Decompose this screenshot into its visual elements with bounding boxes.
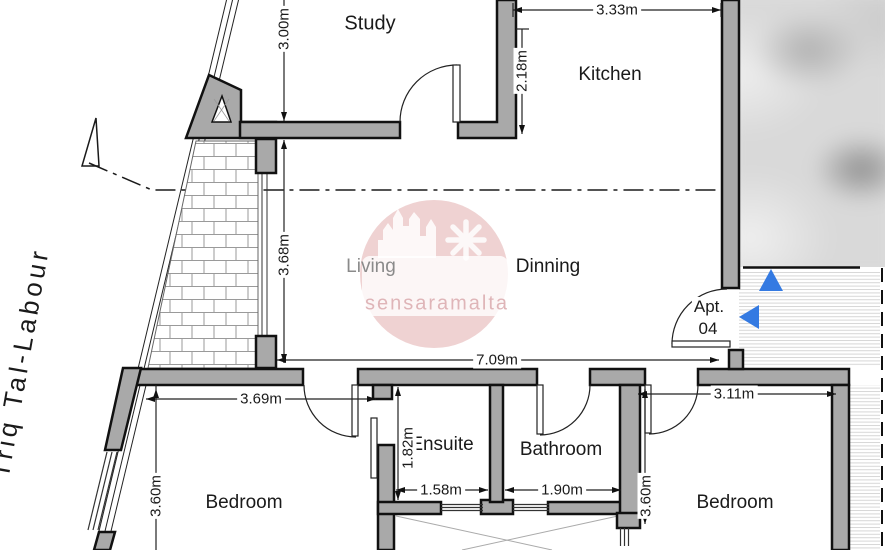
dim-bathroom-width: 1.90m [538, 482, 586, 499]
dim-ensuite-height: 1.82m [400, 425, 417, 471]
room-label-kitchen: Kitchen [578, 64, 641, 86]
wall-bedroom-left-diagonal-b [94, 532, 115, 550]
wall-living-bottom-3 [590, 369, 645, 385]
watermark-text: sensaramalta [365, 293, 509, 316]
dim-bedroom-left-width: 3.69m [237, 391, 285, 408]
floor-plan: Study Kitchen Living Dinning Ensuite Bat… [0, 0, 885, 550]
dim-study-height: 3.00m [276, 6, 293, 52]
study-door-leaf [453, 65, 460, 122]
wall-bathroom-bottom [548, 502, 623, 514]
entrance-door-leaf [672, 341, 730, 347]
room-label-living: Living [346, 256, 396, 278]
wall-window-pier-top [256, 139, 276, 173]
dim-ensuite-width: 1.58m [417, 482, 465, 499]
study-door-arc [400, 65, 457, 122]
dim-bedroom-right-height: 3.60m [638, 473, 655, 519]
wall-building-right [722, 0, 739, 288]
wall-ensuite-left [378, 445, 394, 550]
apartment-number-line2: 04 [697, 319, 720, 339]
bathroom-door-leaf [537, 385, 543, 434]
room-label-study: Study [344, 13, 395, 36]
room-label-bathroom: Bathroom [520, 439, 602, 461]
wall-living-bottom-4 [698, 369, 849, 385]
room-label-bedroom-left: Bedroom [205, 492, 282, 514]
wall-bedroom-left-diagonal-a [105, 368, 141, 450]
apartment-number-line1: Apt. [692, 297, 726, 317]
wall-ensuite-bottom [378, 502, 441, 514]
room-label-bedroom-right: Bedroom [696, 492, 773, 514]
wall-ensuite-tee [373, 385, 392, 399]
wall-ensuite-bathroom [490, 385, 503, 502]
dim-bedroom-right-width: 3.11m [711, 386, 758, 403]
dim-kitchen-height: 2.18m [514, 48, 531, 94]
bathroom-door-arc [540, 385, 590, 435]
wall-living-bottom-2 [358, 369, 537, 385]
room-label-ensuite: Ensuite [410, 434, 473, 456]
wall-kitchen-left [458, 0, 516, 138]
watermark-windmill-icon [448, 222, 484, 258]
wall-bedroom-right [832, 385, 849, 550]
window-glazing [88, 452, 629, 546]
ensuite-door-leaf [371, 418, 377, 478]
bedroom-right-door-arc [649, 385, 698, 434]
shaft-cross-lines [396, 516, 618, 550]
wall-entrance-block [729, 350, 743, 369]
wall-window-pier-bottom [256, 336, 276, 368]
dim-bedroom-left-height: 3.60m [148, 473, 165, 519]
section-line [82, 118, 738, 190]
wall-study-bottom [240, 122, 400, 138]
dim-living-width: 7.09m [473, 352, 521, 369]
dim-living-height: 3.68m [276, 232, 293, 278]
dim-kitchen-width: 3.33m [593, 2, 641, 19]
hall-door-leaf [352, 385, 358, 436]
room-label-dinning: Dinning [516, 256, 580, 278]
plan-drawing [0, 0, 885, 550]
hall-door-arc [304, 385, 356, 437]
wall-living-bottom-1 [127, 369, 303, 385]
